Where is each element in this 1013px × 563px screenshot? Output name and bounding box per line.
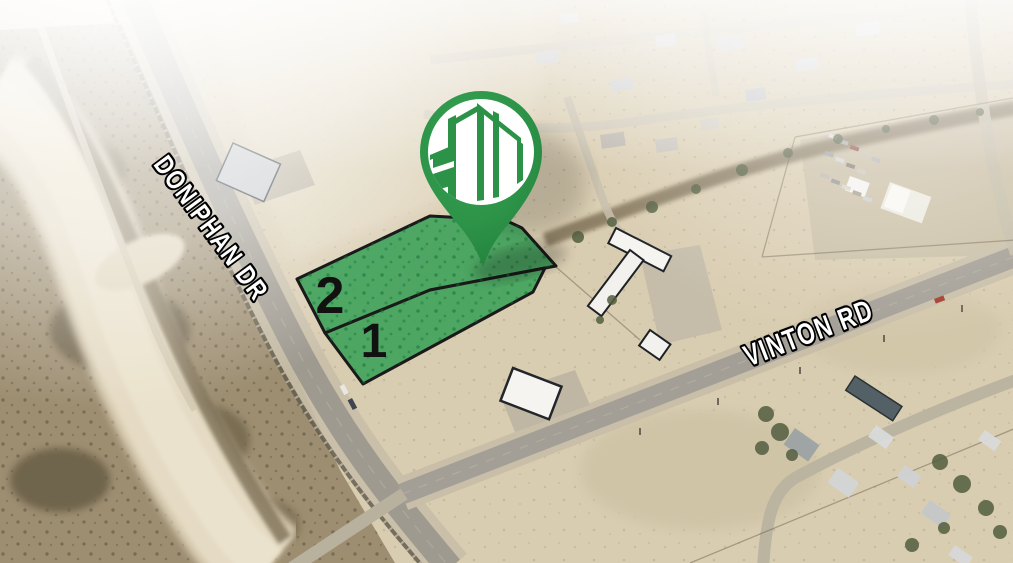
satellite-map: 2 1 DONIPHAN DR VINTON RD [0,0,1013,563]
parcel-1-label: 1 [361,315,388,368]
city-buildings-pin-icon [428,99,534,205]
parcel-2-label: 2 [316,267,345,325]
aerial-map: 2 1 DONIPHAN DR VINTON RD [0,0,1013,563]
